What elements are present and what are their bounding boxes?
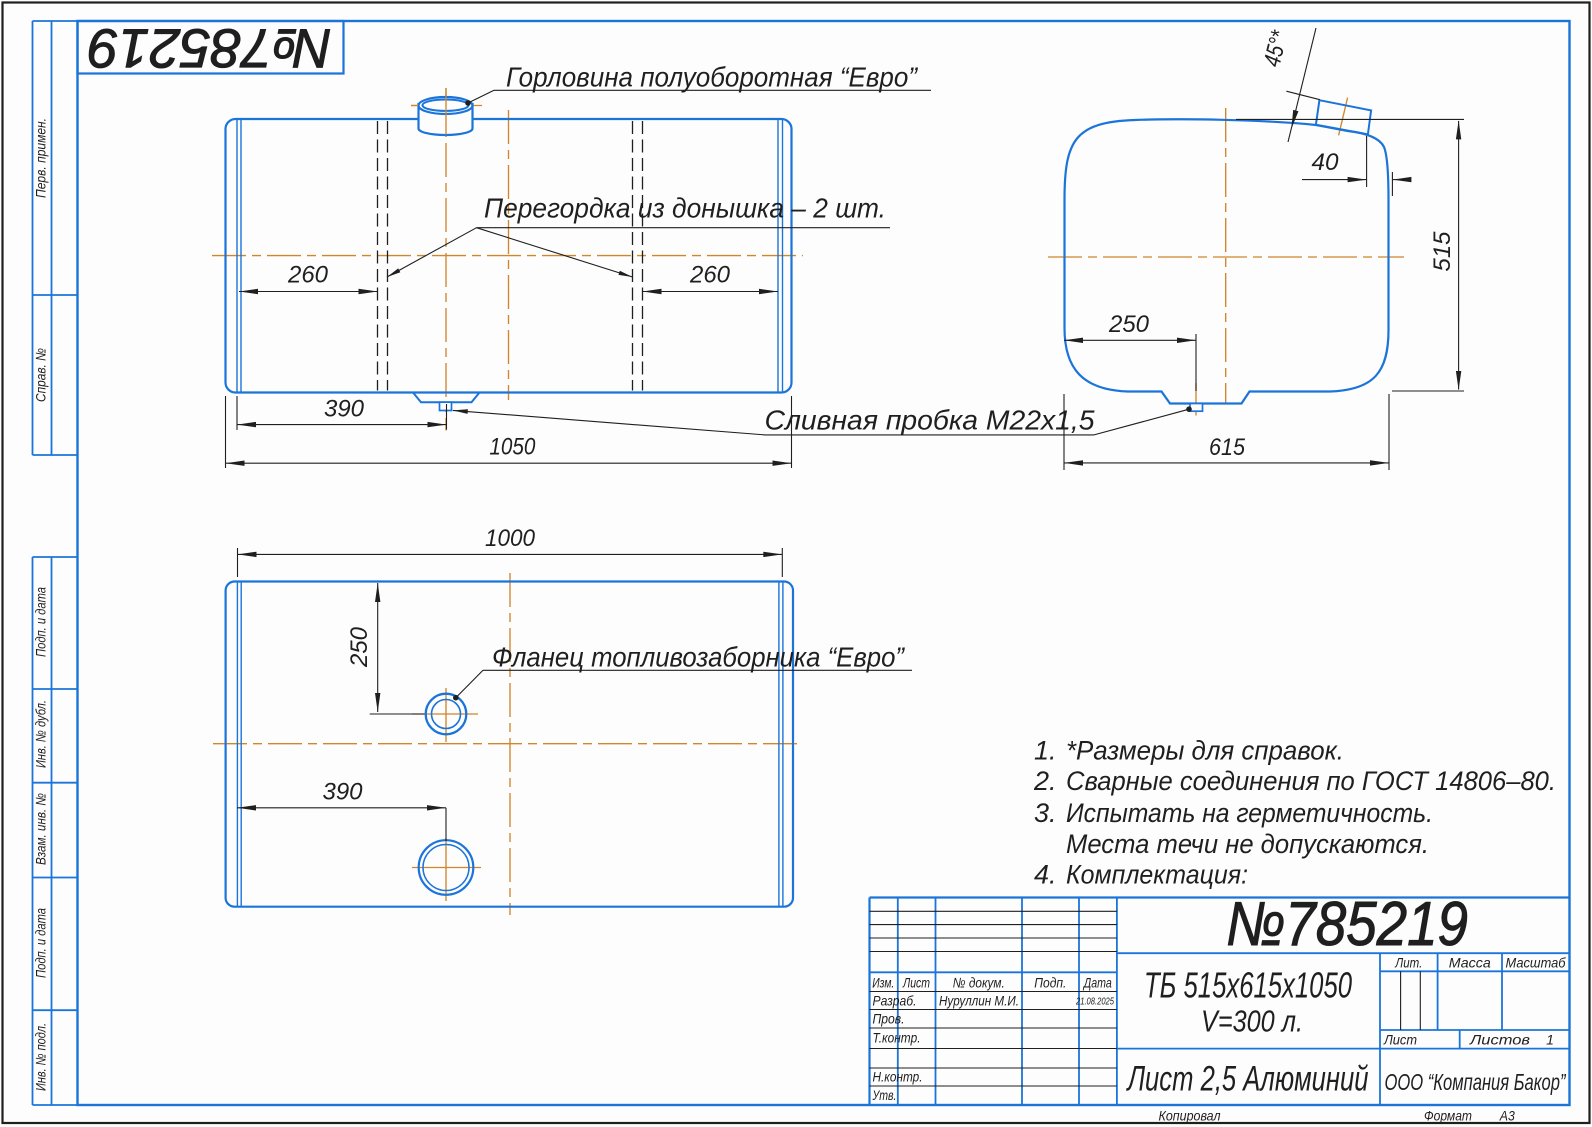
svg-text:Н.контр.: Н.контр. [873,1069,923,1085]
svg-text:Лист: Лист [1383,1031,1417,1047]
svg-text:Инв. № дубл.: Инв. № дубл. [33,700,49,768]
svg-text:Сливная пробка М22х1,5: Сливная пробка М22х1,5 [765,405,1095,436]
svg-text:Копировал: Копировал [1159,1108,1221,1124]
svg-text:*Размеры для справок.: *Размеры для справок. [1066,736,1344,766]
svg-text:40: 40 [1312,149,1340,176]
svg-text:1.: 1. [1034,736,1057,766]
svg-text:Формат: Формат [1424,1108,1472,1124]
svg-text:№ докум.: № докум. [953,975,1005,991]
svg-text:Горловина полуоборотная “Евро”: Горловина полуоборотная “Евро” [506,62,919,93]
svg-text:Сварные соединения по ГОСТ 148: Сварные соединения по ГОСТ 14806–80. [1066,766,1556,796]
svg-text:390: 390 [323,778,364,805]
svg-text:Справ. №: Справ. № [33,348,49,402]
svg-text:Пров.: Пров. [873,1011,905,1027]
svg-text:Взам. инв. №: Взам. инв. № [33,793,49,865]
svg-text:250: 250 [1108,311,1150,338]
svg-text:4.: 4. [1034,860,1057,890]
svg-text:Нуруллин М.И.: Нуруллин М.И. [939,993,1019,1009]
svg-text:А3: А3 [1499,1108,1515,1124]
svg-text:1000: 1000 [485,525,536,552]
svg-text:Комплектация:: Комплектация: [1066,860,1248,890]
svg-text:Дата: Дата [1082,975,1112,991]
svg-text:515: 515 [1429,231,1456,272]
svg-text:Перв. примен.: Перв. примен. [33,118,49,198]
svg-text:Т.контр.: Т.контр. [873,1030,921,1046]
svg-text:260: 260 [689,262,731,289]
svg-text:Изм.: Изм. [872,975,894,991]
svg-text:Утв.: Утв. [872,1087,897,1103]
svg-text:Инв. № подл.: Инв. № подл. [33,1023,49,1091]
svg-text:Листов: Листов [1469,1031,1530,1047]
svg-text:Испытать на герметичность.: Испытать на герметичность. [1066,798,1433,828]
svg-text:ООО “Компания Бакор”: ООО “Компания Бакор” [1385,1069,1567,1095]
svg-text:250: 250 [346,626,373,668]
svg-text:Разраб.: Разраб. [873,993,917,1009]
svg-text:260: 260 [287,262,329,289]
svg-text:Масштаб: Масштаб [1506,955,1567,971]
svg-text:615: 615 [1209,434,1246,461]
svg-text:Подп. и дата: Подп. и дата [33,908,49,978]
svg-text:Лист 2,5 Алюминий: Лист 2,5 Алюминий [1126,1060,1368,1099]
svg-text:Подп. и дата: Подп. и дата [33,587,49,657]
svg-text:V=300 л.: V=300 л. [1201,1004,1303,1039]
svg-text:Фланец топливозаборника “Евро”: Фланец топливозаборника “Евро” [492,641,906,672]
svg-text:1050: 1050 [489,434,536,461]
svg-text:ТБ 515х615х1050: ТБ 515х615х1050 [1144,964,1352,1005]
svg-text:3.: 3. [1034,798,1057,828]
svg-text:№785219: №785219 [1226,890,1468,959]
svg-text:1: 1 [1546,1031,1554,1047]
svg-text:390: 390 [324,396,365,423]
svg-text:Места течи не допускаются.: Места течи не допускаются. [1066,829,1429,859]
svg-text:Подп.: Подп. [1034,975,1066,991]
svg-text:21.08.2025: 21.08.2025 [1075,997,1114,1008]
svg-text:Лист: Лист [902,975,930,991]
svg-text:2.: 2. [1033,766,1057,796]
svg-text:№785219: №785219 [88,18,332,80]
svg-text:Перегордка из донышка – 2 шт.: Перегордка из донышка – 2 шт. [484,193,886,224]
